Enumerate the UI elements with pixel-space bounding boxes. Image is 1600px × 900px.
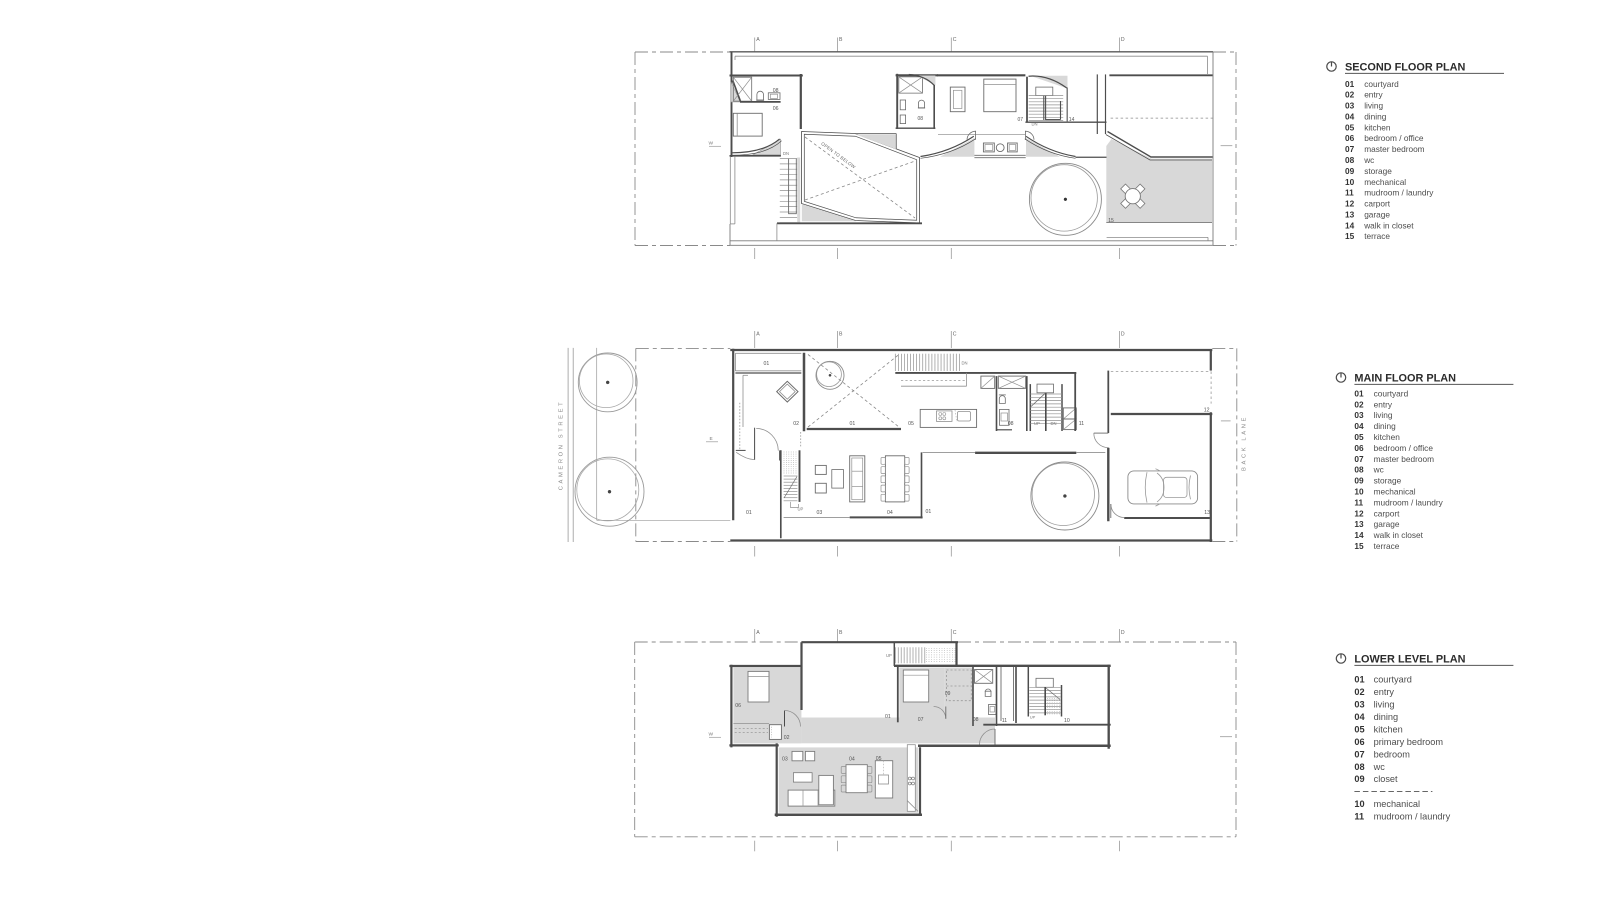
svg-text:02: 02 [784, 735, 790, 741]
svg-text:master bedroom: master bedroom [1364, 144, 1424, 154]
svg-text:04: 04 [849, 757, 855, 763]
svg-text:entry: entry [1374, 687, 1395, 697]
svg-text:DN: DN [1051, 421, 1057, 426]
svg-text:kitchen: kitchen [1374, 724, 1403, 734]
svg-text:E: E [710, 436, 713, 442]
svg-text:05: 05 [908, 421, 914, 427]
svg-text:14: 14 [1069, 117, 1075, 123]
svg-text:courtyard: courtyard [1374, 675, 1412, 685]
svg-text:UP: UP [886, 653, 892, 658]
svg-text:06: 06 [1354, 443, 1364, 453]
svg-text:05: 05 [1354, 724, 1364, 734]
svg-text:garage: garage [1374, 519, 1400, 529]
svg-text:01: 01 [926, 509, 932, 515]
svg-text:mudroom / laundry: mudroom / laundry [1374, 497, 1444, 507]
svg-text:04: 04 [1345, 111, 1355, 121]
svg-text:02: 02 [1345, 90, 1355, 100]
svg-text:walk in closet: walk in closet [1363, 220, 1414, 230]
svg-text:DN: DN [783, 151, 789, 156]
svg-text:UP: UP [1034, 421, 1040, 426]
svg-text:04: 04 [1354, 712, 1365, 722]
svg-text:LOWER LEVEL PLAN: LOWER LEVEL PLAN [1354, 654, 1465, 666]
svg-text:04: 04 [1354, 421, 1364, 431]
svg-text:carport: carport [1364, 199, 1391, 209]
svg-text:08: 08 [1008, 421, 1014, 427]
svg-text:closet: closet [1374, 774, 1398, 784]
svg-text:09: 09 [1354, 774, 1364, 784]
svg-text:CAMERON STREET: CAMERON STREET [559, 400, 565, 491]
svg-text:C: C [953, 630, 957, 636]
svg-text:wc: wc [1373, 465, 1384, 475]
svg-text:12: 12 [1345, 199, 1355, 209]
svg-text:07: 07 [918, 717, 924, 723]
svg-text:A: A [756, 630, 760, 636]
svg-text:living: living [1374, 700, 1395, 710]
svg-text:13: 13 [1345, 209, 1355, 219]
svg-text:D: D [1121, 332, 1125, 338]
svg-text:10: 10 [1345, 177, 1355, 187]
svg-text:04: 04 [887, 510, 893, 516]
svg-text:UP: UP [798, 507, 804, 512]
svg-text:mechanical: mechanical [1374, 799, 1420, 809]
svg-text:mechanical: mechanical [1374, 487, 1416, 497]
svg-text:03: 03 [1345, 101, 1355, 111]
svg-text:dining: dining [1364, 111, 1387, 121]
svg-text:storage: storage [1374, 476, 1402, 486]
svg-text:10: 10 [1354, 799, 1364, 809]
svg-text:kitchen: kitchen [1374, 432, 1401, 442]
svg-text:A: A [756, 332, 760, 338]
svg-text:storage: storage [1364, 166, 1392, 176]
svg-text:B: B [839, 332, 843, 338]
svg-text:12: 12 [1354, 508, 1364, 518]
svg-text:01: 01 [1354, 388, 1364, 398]
svg-text:06: 06 [735, 703, 741, 709]
svg-text:01: 01 [764, 361, 770, 367]
svg-text:09: 09 [1345, 166, 1355, 176]
svg-text:courtyard: courtyard [1374, 388, 1409, 398]
svg-text:dining: dining [1374, 712, 1399, 722]
svg-text:08: 08 [1354, 465, 1364, 475]
svg-text:05: 05 [1345, 122, 1355, 132]
svg-text:garage: garage [1364, 209, 1390, 219]
svg-text:08: 08 [918, 116, 924, 122]
svg-text:13: 13 [1204, 510, 1210, 516]
svg-text:08: 08 [973, 717, 979, 723]
svg-text:11: 11 [1354, 497, 1363, 507]
svg-text:14: 14 [1354, 530, 1364, 540]
svg-text:01: 01 [746, 510, 752, 516]
svg-text:BACK LANE: BACK LANE [1242, 415, 1248, 471]
svg-text:C: C [953, 332, 957, 338]
svg-text:10: 10 [1354, 487, 1364, 497]
svg-text:02: 02 [793, 421, 799, 427]
svg-text:10: 10 [1064, 718, 1070, 724]
svg-text:primary bedroom: primary bedroom [1374, 737, 1444, 747]
svg-text:dining: dining [1374, 421, 1397, 431]
svg-text:C: C [953, 37, 957, 43]
svg-text:mechanical: mechanical [1364, 177, 1406, 187]
svg-text:wc: wc [1373, 762, 1386, 772]
svg-text:D: D [1121, 630, 1125, 636]
svg-text:01: 01 [1345, 79, 1355, 89]
svg-text:03: 03 [817, 510, 823, 516]
svg-text:bedroom / office: bedroom / office [1364, 133, 1424, 143]
svg-text:B: B [839, 37, 843, 43]
svg-text:01: 01 [850, 421, 856, 427]
svg-text:DN: DN [1032, 122, 1038, 127]
svg-text:13: 13 [1354, 519, 1364, 529]
svg-text:11: 11 [1354, 812, 1364, 822]
svg-text:living: living [1364, 101, 1383, 111]
svg-text:DN: DN [962, 361, 968, 366]
svg-text:bedroom: bedroom [1374, 749, 1411, 759]
svg-text:terrace: terrace [1364, 231, 1390, 241]
svg-text:11: 11 [1345, 188, 1354, 198]
svg-text:08: 08 [773, 88, 779, 94]
svg-text:D: D [1121, 37, 1125, 43]
svg-text:06: 06 [1354, 737, 1364, 747]
svg-text:MAIN FLOOR PLAN: MAIN FLOOR PLAN [1354, 373, 1456, 385]
svg-text:12: 12 [1204, 408, 1210, 414]
svg-text:living: living [1374, 410, 1393, 420]
svg-text:01: 01 [1354, 675, 1364, 685]
svg-text:carport: carport [1374, 508, 1401, 518]
svg-text:09: 09 [945, 691, 951, 697]
svg-text:08: 08 [1354, 762, 1364, 772]
svg-text:06: 06 [1345, 133, 1355, 143]
svg-text:11: 11 [1002, 718, 1007, 724]
svg-text:SECOND FLOOR PLAN: SECOND FLOOR PLAN [1345, 62, 1466, 74]
svg-text:W: W [709, 141, 714, 147]
svg-text:courtyard: courtyard [1364, 79, 1399, 89]
svg-text:07: 07 [1018, 117, 1024, 123]
svg-text:02: 02 [1354, 687, 1364, 697]
svg-text:entry: entry [1374, 399, 1393, 409]
svg-text:15: 15 [1354, 541, 1364, 551]
svg-text:08: 08 [1345, 155, 1355, 165]
svg-text:11: 11 [1079, 421, 1084, 427]
svg-text:mudroom / laundry: mudroom / laundry [1364, 188, 1434, 198]
svg-text:03: 03 [1354, 410, 1364, 420]
svg-text:walk in closet: walk in closet [1373, 530, 1424, 540]
svg-text:15: 15 [1345, 231, 1355, 241]
svg-text:01: 01 [885, 714, 891, 720]
svg-text:W: W [709, 732, 714, 738]
svg-text:07: 07 [1354, 454, 1364, 464]
svg-text:bedroom / office: bedroom / office [1374, 443, 1434, 453]
svg-text:07: 07 [1345, 144, 1355, 154]
svg-text:02: 02 [1354, 399, 1364, 409]
svg-text:kitchen: kitchen [1364, 122, 1391, 132]
svg-text:terrace: terrace [1374, 541, 1400, 551]
svg-text:entry: entry [1364, 90, 1383, 100]
svg-text:mudroom / laundry: mudroom / laundry [1374, 812, 1451, 822]
svg-text:wc: wc [1363, 155, 1374, 165]
svg-text:06: 06 [773, 106, 779, 112]
svg-text:07: 07 [1354, 749, 1364, 759]
svg-text:14: 14 [1345, 220, 1355, 230]
svg-text:05: 05 [1354, 432, 1364, 442]
svg-text:UP: UP [1030, 715, 1036, 720]
svg-text:03: 03 [782, 757, 788, 763]
svg-text:B: B [839, 630, 843, 636]
svg-text:master bedroom: master bedroom [1374, 454, 1434, 464]
svg-text:09: 09 [1354, 476, 1364, 486]
svg-text:A: A [756, 37, 760, 43]
svg-text:03: 03 [1354, 700, 1364, 710]
